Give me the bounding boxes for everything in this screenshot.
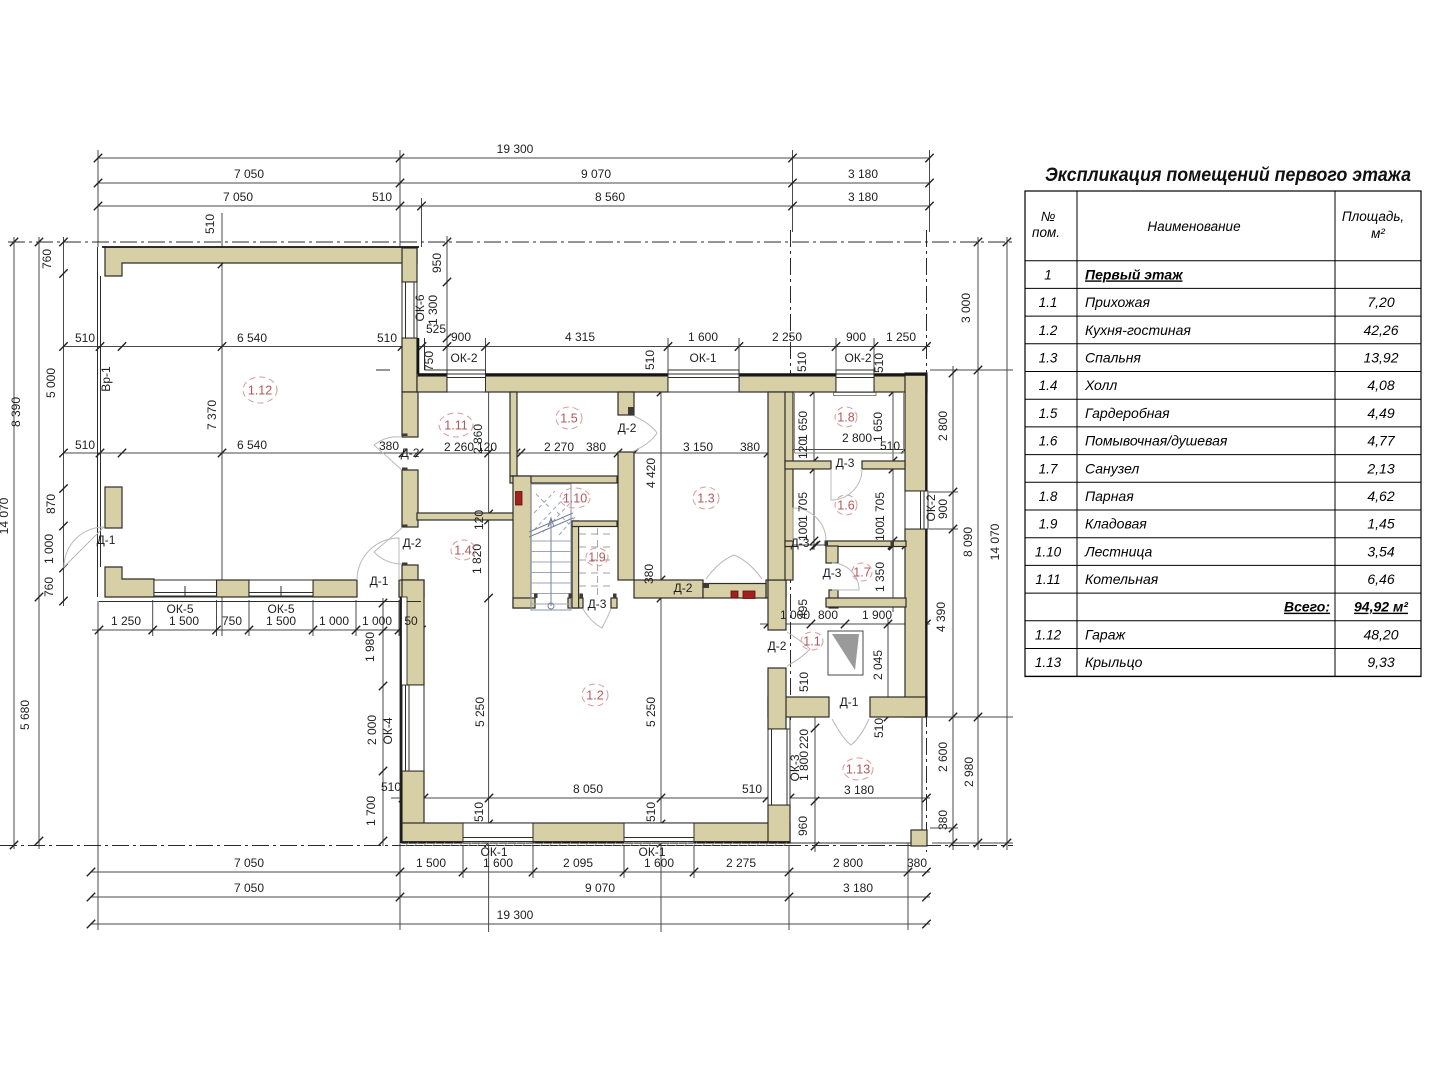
- svg-text:4 315: 4 315: [565, 330, 595, 344]
- svg-text:Первый этаж: Первый этаж: [1085, 266, 1183, 282]
- svg-text:4 420: 4 420: [644, 458, 658, 488]
- svg-text:1 300: 1 300: [426, 295, 440, 325]
- svg-text:750: 750: [422, 351, 436, 371]
- svg-text:42,26: 42,26: [1363, 322, 1398, 338]
- svg-text:2 275: 2 275: [726, 856, 756, 870]
- svg-text:ОК-2: ОК-2: [451, 351, 478, 365]
- svg-text:4,77: 4,77: [1367, 433, 1395, 449]
- svg-text:6 540: 6 540: [237, 438, 267, 452]
- svg-text:1 350: 1 350: [873, 562, 887, 592]
- svg-text:2 800: 2 800: [833, 856, 863, 870]
- svg-text:100: 100: [796, 521, 810, 541]
- svg-text:2 980: 2 980: [962, 757, 976, 787]
- svg-text:2 860: 2 860: [471, 424, 485, 454]
- svg-text:1 250: 1 250: [886, 330, 916, 344]
- svg-text:1 705: 1 705: [796, 492, 810, 522]
- svg-text:1.11: 1.11: [1035, 572, 1060, 587]
- svg-text:Д-1: Д-1: [840, 695, 859, 709]
- svg-text:ОК-6: ОК-6: [413, 294, 427, 321]
- svg-text:870: 870: [44, 494, 58, 514]
- svg-text:380: 380: [642, 564, 656, 584]
- svg-text:1 500: 1 500: [266, 614, 296, 628]
- svg-text:380: 380: [379, 439, 399, 453]
- svg-text:6,46: 6,46: [1367, 571, 1394, 587]
- svg-text:1.8: 1.8: [1039, 489, 1058, 504]
- svg-text:760: 760: [42, 577, 56, 597]
- svg-text:5 680: 5 680: [18, 700, 32, 730]
- svg-text:900: 900: [846, 330, 866, 344]
- svg-text:510: 510: [644, 802, 658, 822]
- svg-text:510: 510: [872, 718, 886, 738]
- svg-text:пом.: пом.: [1032, 225, 1060, 240]
- svg-text:950: 950: [430, 253, 444, 273]
- svg-text:7 370: 7 370: [205, 400, 219, 430]
- svg-text:510: 510: [797, 672, 811, 692]
- svg-text:100: 100: [873, 521, 887, 541]
- svg-text:Наименование: Наименование: [1147, 219, 1240, 234]
- svg-text:6 540: 6 540: [237, 331, 267, 345]
- svg-text:Д-1: Д-1: [370, 574, 389, 588]
- svg-text:7 050: 7 050: [234, 856, 264, 870]
- svg-text:800: 800: [818, 608, 838, 622]
- svg-text:1: 1: [1044, 267, 1052, 282]
- svg-text:3 180: 3 180: [844, 783, 874, 797]
- svg-text:Д-2: Д-2: [768, 639, 787, 653]
- svg-text:Парная: Парная: [1085, 488, 1134, 504]
- svg-text:7 050: 7 050: [234, 167, 264, 181]
- svg-text:2 600: 2 600: [936, 742, 950, 772]
- svg-text:4,62: 4,62: [1367, 488, 1394, 504]
- svg-text:Холл: Холл: [1084, 377, 1117, 393]
- svg-text:3 180: 3 180: [843, 881, 873, 895]
- svg-text:Д-2: Д-2: [403, 536, 422, 550]
- svg-text:1.5: 1.5: [560, 412, 577, 426]
- svg-text:Д-3: Д-3: [823, 566, 842, 580]
- svg-text:Д-2: Д-2: [401, 446, 420, 460]
- svg-text:510: 510: [377, 331, 397, 345]
- svg-text:1 600: 1 600: [688, 330, 718, 344]
- svg-text:1.10: 1.10: [563, 492, 587, 506]
- svg-text:8 050: 8 050: [573, 782, 603, 796]
- svg-text:120: 120: [796, 439, 810, 459]
- svg-text:1 650: 1 650: [871, 412, 885, 442]
- svg-text:1.1: 1.1: [1039, 295, 1058, 310]
- svg-text:960: 960: [796, 816, 810, 836]
- svg-text:510: 510: [372, 190, 392, 204]
- svg-text:м²: м²: [1371, 226, 1385, 241]
- svg-text:1.8: 1.8: [837, 411, 854, 425]
- svg-text:2,13: 2,13: [1366, 460, 1394, 476]
- svg-text:ОК-5: ОК-5: [268, 602, 295, 616]
- svg-text:1 500: 1 500: [416, 856, 446, 870]
- svg-text:Кухня-гостиная: Кухня-гостиная: [1085, 322, 1191, 338]
- svg-text:2 250: 2 250: [772, 330, 802, 344]
- svg-text:ОК-1: ОК-1: [639, 845, 666, 859]
- svg-text:1.5: 1.5: [1039, 406, 1058, 421]
- svg-text:380: 380: [907, 856, 927, 870]
- svg-text:ОК-1: ОК-1: [481, 845, 508, 859]
- svg-text:510: 510: [75, 331, 95, 345]
- svg-text:510: 510: [203, 214, 217, 234]
- svg-text:7 050: 7 050: [223, 190, 253, 204]
- svg-text:120: 120: [472, 510, 486, 530]
- svg-text:2 800: 2 800: [936, 411, 950, 441]
- svg-text:1 250: 1 250: [111, 614, 141, 628]
- svg-text:8 560: 8 560: [595, 190, 625, 204]
- svg-text:Кладовая: Кладовая: [1085, 516, 1147, 532]
- svg-text:19 300: 19 300: [497, 142, 534, 156]
- svg-text:2 095: 2 095: [563, 856, 593, 870]
- svg-text:5 000: 5 000: [44, 368, 58, 398]
- svg-text:ОК-3: ОК-3: [788, 754, 802, 781]
- svg-text:1 000: 1 000: [42, 534, 56, 564]
- svg-text:ОК-2: ОК-2: [845, 351, 872, 365]
- svg-text:1 700: 1 700: [364, 796, 378, 826]
- svg-text:900: 900: [936, 499, 950, 519]
- svg-text:2 270: 2 270: [544, 440, 574, 454]
- svg-text:Лестница: Лестница: [1084, 543, 1153, 559]
- svg-text:9 070: 9 070: [581, 167, 611, 181]
- svg-text:510: 510: [381, 780, 401, 794]
- svg-text:1 900: 1 900: [862, 608, 892, 622]
- svg-text:Д-3: Д-3: [588, 597, 607, 611]
- svg-text:1 000: 1 000: [319, 614, 349, 628]
- svg-text:50: 50: [404, 614, 418, 628]
- svg-text:9 070: 9 070: [585, 881, 615, 895]
- svg-text:900: 900: [451, 330, 471, 344]
- svg-text:14 070: 14 070: [988, 523, 1002, 560]
- svg-text:1.9: 1.9: [1039, 517, 1058, 532]
- svg-text:9,33: 9,33: [1367, 654, 1394, 670]
- svg-text:7 050: 7 050: [234, 881, 264, 895]
- svg-text:1.2: 1.2: [586, 689, 603, 703]
- svg-text:1 000: 1 000: [362, 614, 392, 628]
- svg-text:510: 510: [643, 350, 657, 370]
- svg-text:380: 380: [936, 810, 950, 830]
- svg-text:510: 510: [872, 353, 886, 373]
- svg-text:3 150: 3 150: [683, 440, 713, 454]
- svg-text:1 500: 1 500: [169, 614, 199, 628]
- svg-text:380: 380: [586, 440, 606, 454]
- svg-text:Прихожая: Прихожая: [1085, 294, 1150, 310]
- svg-text:1.13: 1.13: [846, 763, 870, 777]
- svg-text:8 090: 8 090: [961, 527, 975, 557]
- svg-text:14 070: 14 070: [0, 497, 11, 534]
- svg-text:2 800: 2 800: [842, 431, 872, 445]
- svg-text:510: 510: [742, 782, 762, 796]
- svg-text:Д-2: Д-2: [674, 581, 693, 595]
- svg-text:1.9: 1.9: [588, 551, 605, 565]
- svg-text:1.12: 1.12: [248, 384, 272, 398]
- svg-text:Д-3: Д-3: [836, 456, 855, 470]
- svg-text:1 820: 1 820: [470, 544, 484, 574]
- svg-text:2 260: 2 260: [444, 440, 474, 454]
- svg-text:Д-2: Д-2: [618, 421, 637, 435]
- svg-text:1.7: 1.7: [1039, 461, 1058, 476]
- svg-text:2 000: 2 000: [365, 715, 379, 745]
- svg-text:510: 510: [472, 802, 486, 822]
- svg-text:1.4: 1.4: [454, 544, 471, 558]
- svg-text:4,08: 4,08: [1367, 377, 1394, 393]
- svg-text:1.12: 1.12: [1035, 627, 1062, 642]
- svg-text:3 180: 3 180: [848, 190, 878, 204]
- svg-text:48,20: 48,20: [1363, 626, 1398, 642]
- svg-text:Спальня: Спальня: [1085, 349, 1141, 365]
- svg-text:3 180: 3 180: [848, 167, 878, 181]
- svg-text:№: №: [1041, 209, 1056, 224]
- svg-text:1.11: 1.11: [444, 419, 467, 433]
- svg-text:510: 510: [795, 352, 809, 372]
- svg-text:7,20: 7,20: [1367, 294, 1394, 310]
- svg-text:1.3: 1.3: [697, 492, 714, 506]
- svg-text:5 250: 5 250: [644, 697, 658, 727]
- svg-text:1 000: 1 000: [780, 608, 810, 622]
- svg-text:4,49: 4,49: [1367, 405, 1394, 421]
- svg-text:Крыльцо: Крыльцо: [1085, 654, 1143, 670]
- svg-text:19 300: 19 300: [497, 908, 534, 922]
- svg-text:1 705: 1 705: [873, 492, 887, 522]
- svg-text:ОК-4: ОК-4: [381, 717, 395, 744]
- svg-text:1,45: 1,45: [1367, 516, 1394, 532]
- svg-text:Котельная: Котельная: [1085, 571, 1159, 587]
- svg-text:94,92 м²: 94,92 м²: [1354, 599, 1408, 615]
- svg-text:8 390: 8 390: [9, 397, 23, 427]
- svg-text:Экспликация помещений первого: Экспликация помещений первого этажа: [1045, 165, 1411, 186]
- svg-text:4 390: 4 390: [934, 602, 948, 632]
- svg-text:1.10: 1.10: [1035, 544, 1062, 559]
- svg-text:Всего:: Всего:: [1284, 599, 1330, 615]
- svg-text:1 650: 1 650: [796, 411, 810, 441]
- svg-text:1.7: 1.7: [853, 566, 870, 580]
- svg-text:760: 760: [40, 249, 54, 269]
- svg-text:1.3: 1.3: [1039, 350, 1058, 365]
- svg-text:1.4: 1.4: [1039, 378, 1058, 393]
- svg-text:380: 380: [740, 440, 760, 454]
- svg-text:220: 220: [797, 729, 811, 749]
- svg-text:525: 525: [426, 322, 446, 336]
- svg-text:1 980: 1 980: [363, 632, 377, 662]
- svg-text:Санузел: Санузел: [1085, 460, 1139, 476]
- svg-text:750: 750: [222, 614, 242, 628]
- svg-text:Помывочная/душевая: Помывочная/душевая: [1085, 433, 1228, 449]
- svg-text:Вр-1: Вр-1: [99, 366, 113, 392]
- svg-text:1.1: 1.1: [803, 635, 820, 649]
- svg-text:1.6: 1.6: [1039, 434, 1058, 449]
- svg-text:2 045: 2 045: [871, 650, 885, 680]
- svg-text:ОК-5: ОК-5: [167, 602, 194, 616]
- svg-text:1.2: 1.2: [1039, 323, 1058, 338]
- svg-text:Площадь,: Площадь,: [1342, 209, 1404, 224]
- svg-text:510: 510: [75, 438, 95, 452]
- svg-text:13,92: 13,92: [1363, 349, 1398, 365]
- svg-text:Гардеробная: Гардеробная: [1085, 405, 1170, 421]
- svg-text:3,54: 3,54: [1367, 543, 1394, 559]
- svg-text:Д-1: Д-1: [97, 533, 116, 547]
- svg-text:1.6: 1.6: [837, 499, 854, 513]
- svg-text:5 250: 5 250: [473, 697, 487, 727]
- svg-text:Гараж: Гараж: [1085, 626, 1127, 642]
- svg-text:3 000: 3 000: [959, 293, 973, 323]
- svg-text:1.13: 1.13: [1035, 655, 1062, 670]
- svg-text:ОК-1: ОК-1: [690, 351, 717, 365]
